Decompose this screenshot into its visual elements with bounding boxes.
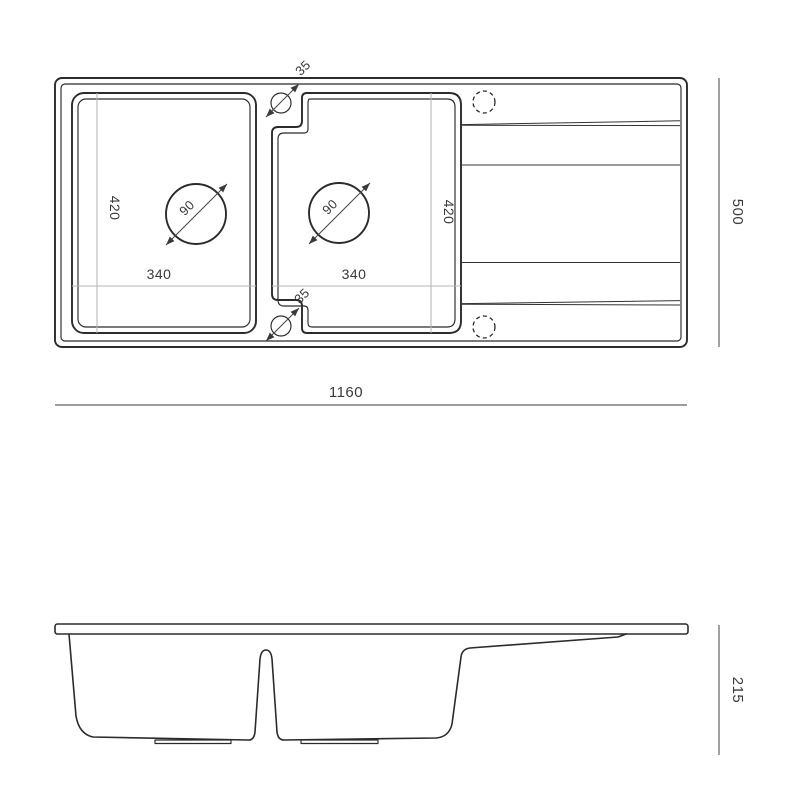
side-rim-profile	[55, 624, 688, 634]
optional-tap-hole-bottom	[473, 316, 495, 338]
top-view: 90 90 35 35 420 340 420 340	[55, 57, 746, 405]
side-bowls-profile	[69, 634, 626, 740]
sink-outer-frame	[55, 78, 687, 347]
tap-hole-top-dim-label: 35	[292, 57, 313, 78]
drawing-page: 90 90 35 35 420 340 420 340	[0, 0, 800, 800]
side-view: 215	[55, 624, 746, 755]
left-bowl-depth-label: 420	[107, 196, 123, 221]
overall-width-label: 1160	[329, 384, 363, 401]
optional-tap-hole-top	[473, 91, 495, 113]
overall-depth-label: 500	[729, 199, 746, 226]
left-bowl	[72, 93, 256, 333]
sink-technical-drawing: 90 90 35 35 420 340 420 340	[0, 0, 800, 800]
right-drain-hole	[309, 183, 369, 243]
left-bowl-foot-pad	[155, 740, 231, 744]
tap-hole-bottom-dim-label: 35	[291, 285, 312, 306]
overall-dimensions: 1160 500	[55, 78, 746, 405]
left-bowl-inner-edge	[78, 99, 250, 327]
overall-height-label: 215	[729, 677, 746, 704]
tap-hole-top	[271, 93, 291, 113]
left-bowl-outer-edge	[72, 93, 256, 333]
left-bowl-width-label: 340	[147, 266, 172, 282]
drainer-groove-line	[462, 121, 680, 125]
right-drain-dim-label: 90	[319, 196, 340, 217]
right-bowl-width-label: 340	[342, 266, 367, 282]
right-bowl-foot-pad	[301, 740, 378, 744]
bowl-dimensions: 420 340 420 340	[72, 93, 461, 333]
drainer-groove-line	[462, 304, 680, 305]
drainer-groove-line	[462, 301, 680, 304]
left-drain-dim-label: 90	[176, 197, 197, 218]
right-bowl-depth-label: 420	[441, 200, 457, 225]
left-drain-hole	[166, 184, 226, 244]
drainer-board	[462, 121, 680, 305]
drain-diameter-dimensions: 90 90	[166, 183, 370, 245]
